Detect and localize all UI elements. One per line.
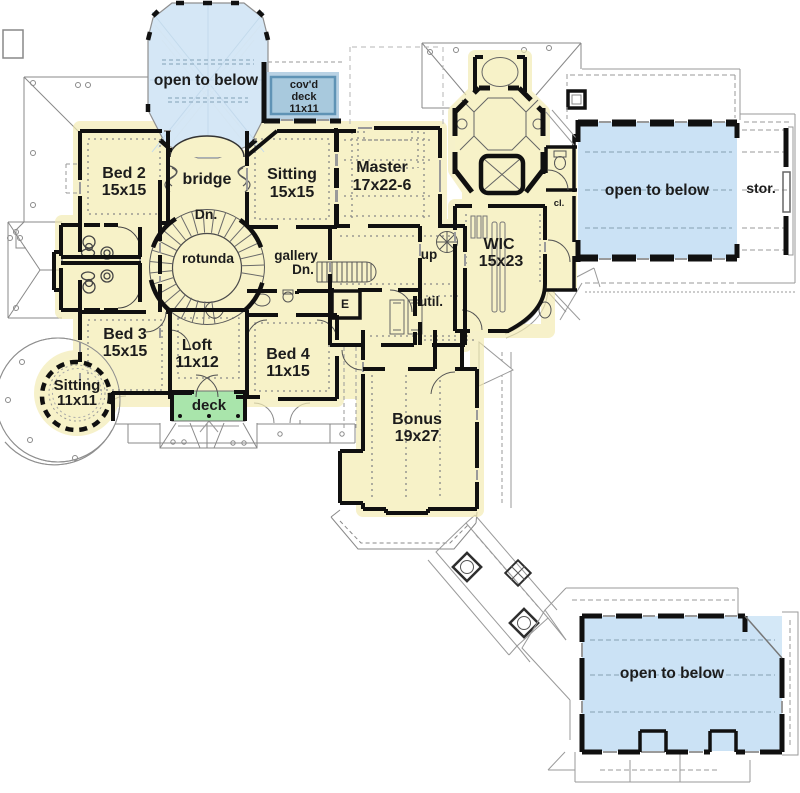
svg-text:15x23: 15x23 <box>479 253 524 270</box>
svg-text:Bed 3: Bed 3 <box>103 326 147 343</box>
svg-text:gallery: gallery <box>274 248 318 263</box>
svg-text:11x15: 11x15 <box>266 363 310 380</box>
svg-text:Dn.: Dn. <box>195 206 218 222</box>
svg-text:rotunda: rotunda <box>182 250 234 266</box>
svg-text:11x11: 11x11 <box>289 103 318 115</box>
svg-text:cl.: cl. <box>554 198 565 209</box>
svg-text:11x11: 11x11 <box>57 392 97 409</box>
svg-text:19x27: 19x27 <box>395 428 440 445</box>
svg-text:deck: deck <box>291 91 317 103</box>
svg-text:util.: util. <box>419 294 443 309</box>
svg-text:Master: Master <box>356 159 408 176</box>
svg-text:deck: deck <box>192 397 227 414</box>
svg-text:15x15: 15x15 <box>103 343 148 360</box>
svg-text:stor.: stor. <box>746 180 776 196</box>
svg-text:Dn.: Dn. <box>292 262 314 277</box>
svg-text:cov'd: cov'd <box>290 79 318 91</box>
svg-text:Loft: Loft <box>182 337 213 354</box>
svg-text:open to below: open to below <box>620 665 725 682</box>
svg-text:bridge: bridge <box>183 171 232 188</box>
svg-text:Bed 2: Bed 2 <box>102 165 146 182</box>
svg-text:Bed 4: Bed 4 <box>266 346 310 363</box>
svg-text:15x15: 15x15 <box>270 184 315 201</box>
svg-text:15x15: 15x15 <box>102 182 147 199</box>
svg-text:Sitting: Sitting <box>267 166 317 183</box>
svg-text:WIC: WIC <box>483 236 515 253</box>
svg-text:up: up <box>421 247 438 262</box>
svg-text:open to below: open to below <box>605 182 710 199</box>
svg-text:Bonus: Bonus <box>392 411 442 428</box>
svg-text:17x22-6: 17x22-6 <box>353 177 412 194</box>
svg-text:E: E <box>341 297 349 311</box>
svg-text:open to below: open to below <box>154 72 259 89</box>
svg-text:11x12: 11x12 <box>175 354 219 371</box>
